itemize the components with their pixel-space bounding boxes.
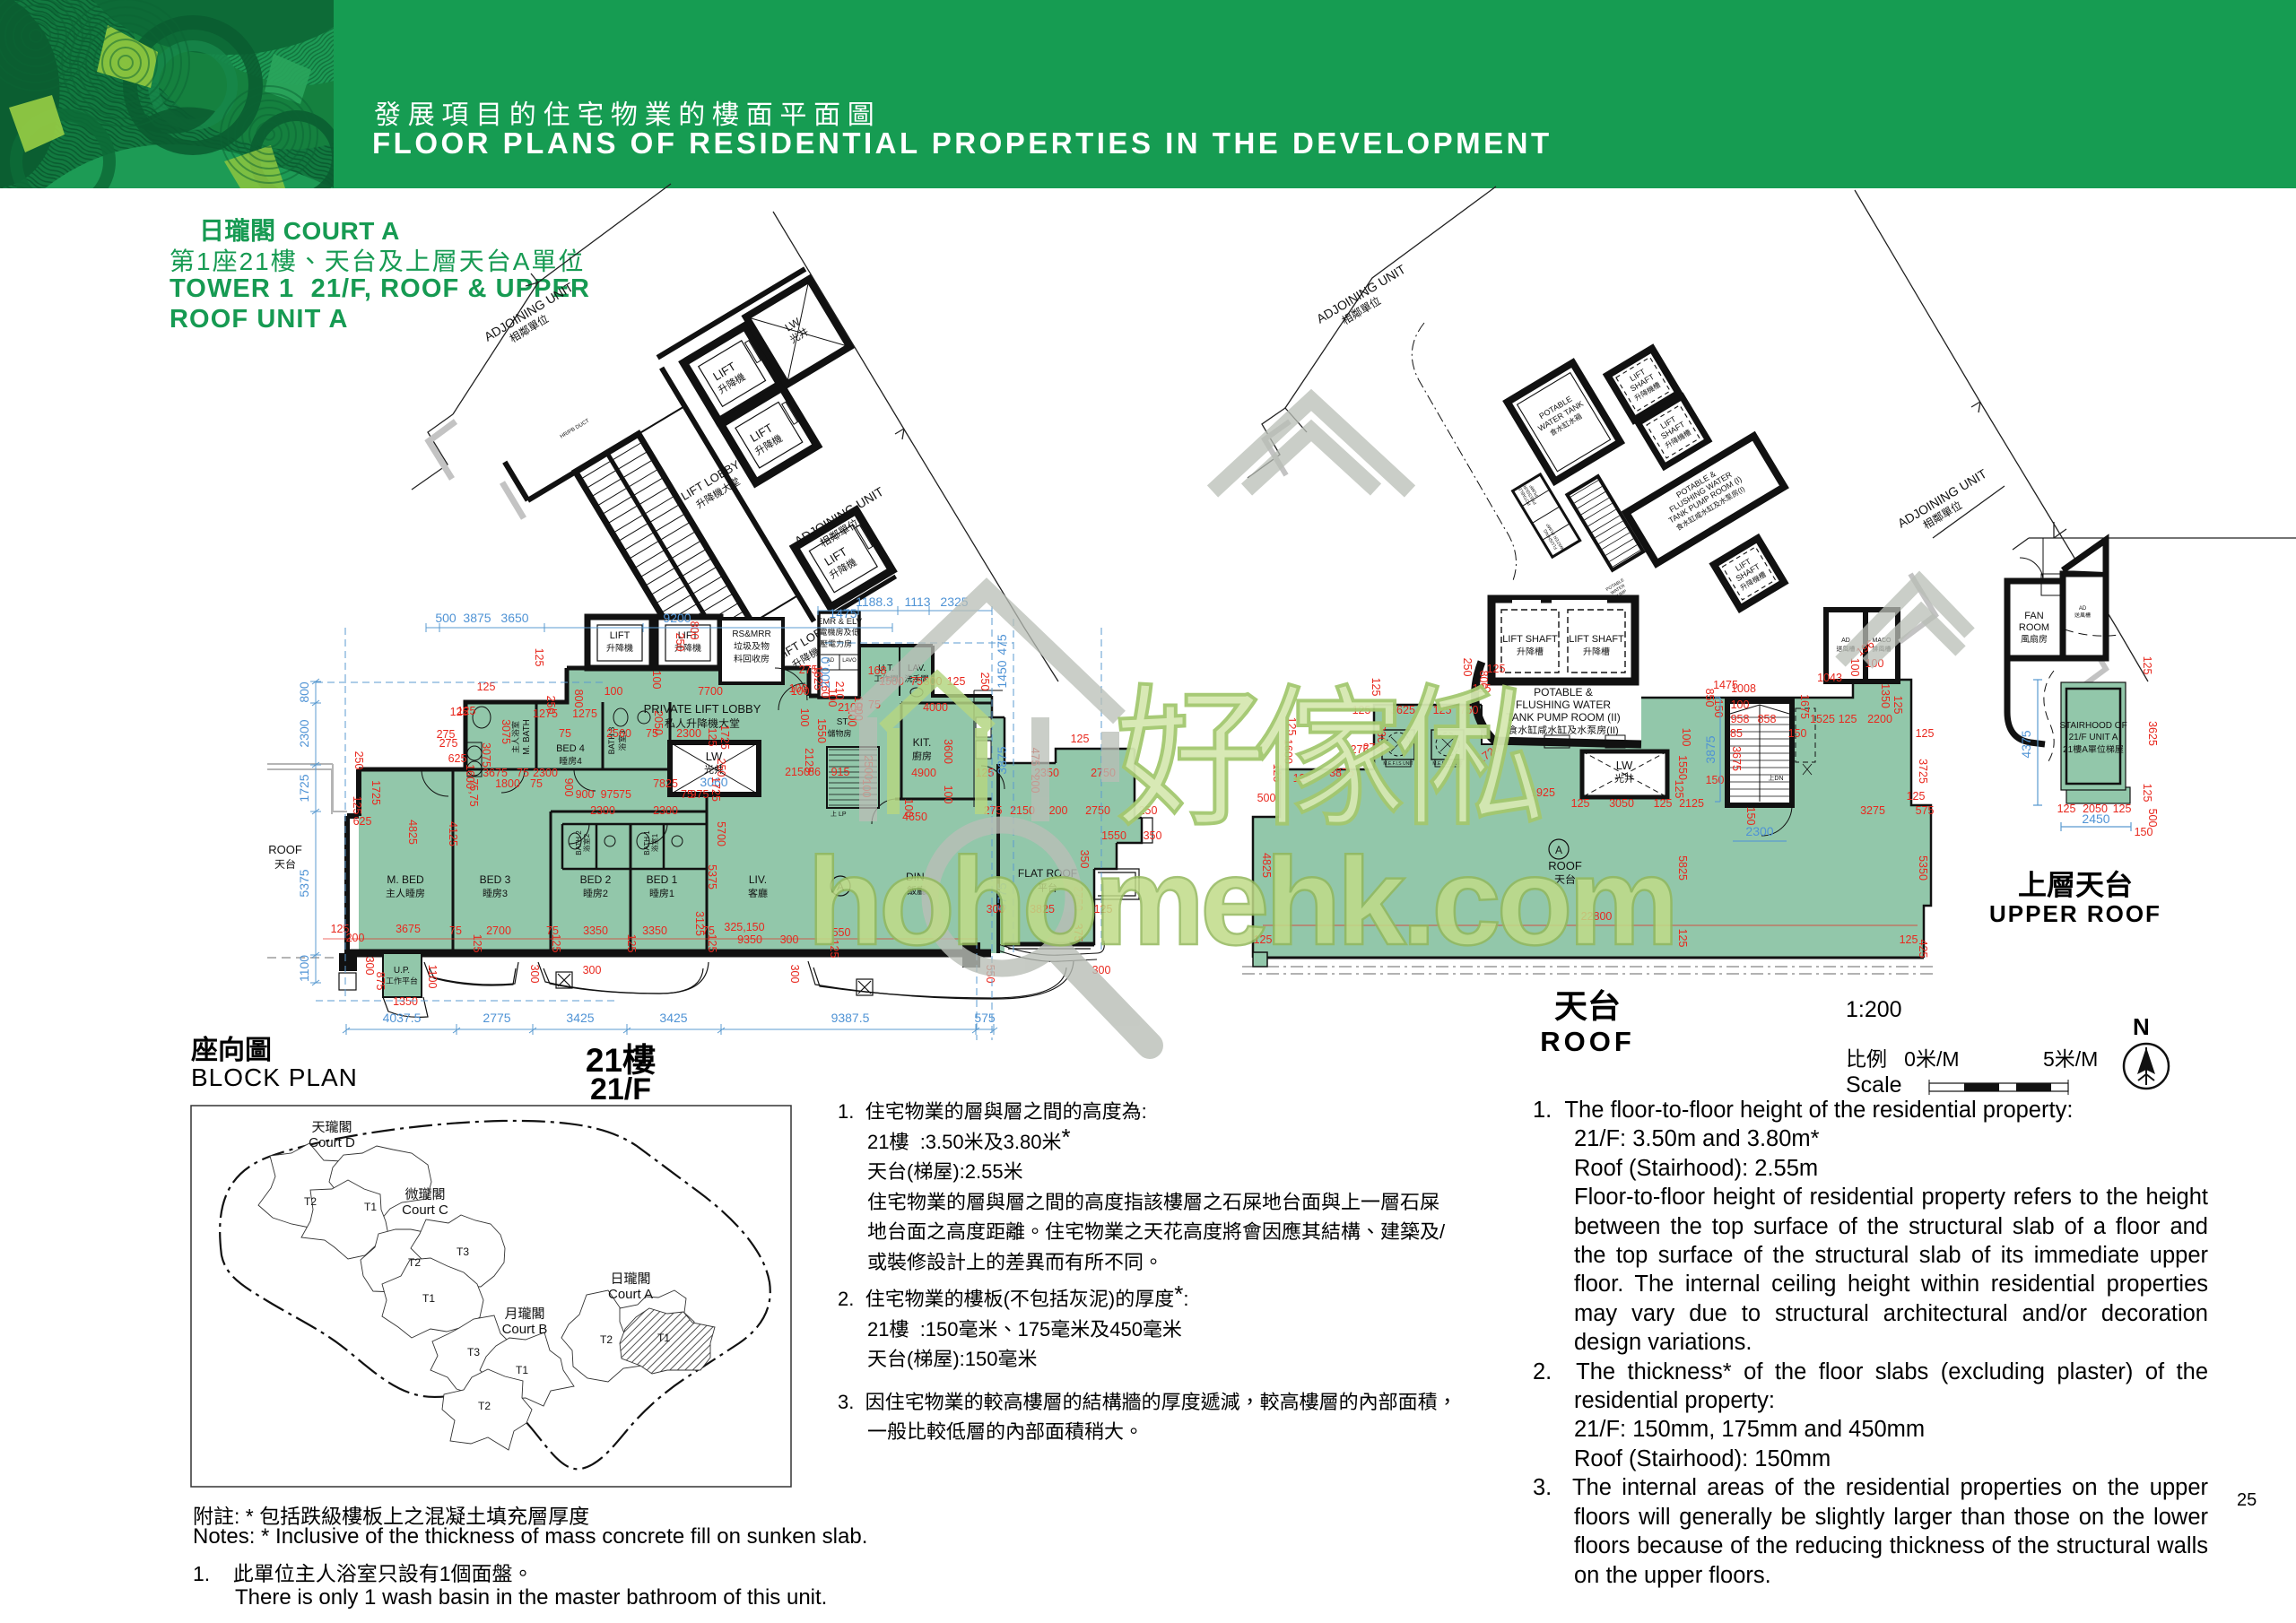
svg-text:M. BED: M. BED bbox=[387, 873, 424, 886]
svg-text:2300: 2300 bbox=[676, 727, 701, 740]
svg-text:125: 125 bbox=[1094, 903, 1113, 916]
svg-text:500: 500 bbox=[435, 611, 457, 625]
svg-text:100: 100 bbox=[604, 685, 623, 698]
svg-text:垃圾及物: 垃圾及物 bbox=[734, 641, 770, 652]
svg-text:5775: 5775 bbox=[995, 882, 1009, 910]
svg-text:M. BATH: M. BATH bbox=[522, 719, 532, 755]
svg-text:2050: 2050 bbox=[2083, 803, 2108, 815]
svg-text:550: 550 bbox=[984, 965, 996, 984]
svg-text:2325: 2325 bbox=[940, 595, 968, 609]
svg-text:LAVO: LAVO bbox=[842, 658, 857, 664]
svg-text:3350: 3350 bbox=[583, 924, 608, 937]
svg-text:150: 150 bbox=[1712, 699, 1725, 718]
svg-text:125: 125 bbox=[1254, 933, 1273, 946]
svg-text:2125: 2125 bbox=[1679, 797, 1704, 810]
svg-text:浴室2: 浴室2 bbox=[583, 833, 591, 852]
svg-text:2300: 2300 bbox=[297, 719, 311, 747]
svg-text:BED 4: BED 4 bbox=[556, 743, 585, 754]
svg-text:275: 275 bbox=[984, 804, 1003, 817]
svg-text:上 LP: 上 LP bbox=[831, 811, 847, 818]
svg-text:3425: 3425 bbox=[659, 1011, 687, 1025]
svg-text:1100: 1100 bbox=[426, 965, 439, 989]
svg-text:125: 125 bbox=[1654, 797, 1673, 810]
svg-text:1100: 1100 bbox=[297, 955, 311, 982]
svg-text:3875: 3875 bbox=[995, 746, 1009, 774]
svg-text:ROOF: ROOF bbox=[268, 843, 302, 856]
svg-text:2775: 2775 bbox=[483, 1011, 510, 1025]
svg-text:Court B: Court B bbox=[502, 1322, 548, 1337]
svg-text:4825: 4825 bbox=[406, 820, 419, 845]
svg-text:100: 100 bbox=[798, 708, 811, 727]
svg-text:300: 300 bbox=[583, 964, 602, 976]
svg-text:350: 350 bbox=[1144, 829, 1162, 842]
svg-text:125: 125 bbox=[828, 940, 840, 959]
svg-text:100: 100 bbox=[942, 785, 954, 804]
svg-text:475: 475 bbox=[995, 634, 1009, 655]
svg-text:BATH 1: BATH 1 bbox=[643, 830, 651, 855]
svg-text:KIT.: KIT. bbox=[913, 736, 932, 749]
svg-text:升降機: 升降機 bbox=[606, 643, 633, 654]
svg-text:3875: 3875 bbox=[463, 611, 491, 625]
svg-text:2300: 2300 bbox=[1745, 824, 1773, 838]
svg-text:升降槽: 升降槽 bbox=[1583, 647, 1610, 657]
svg-text:5825: 5825 bbox=[1676, 855, 1689, 881]
svg-text:BED 2: BED 2 bbox=[580, 873, 612, 886]
svg-text:LIFT SHAFT: LIFT SHAFT bbox=[1502, 634, 1558, 645]
svg-text:350: 350 bbox=[1078, 850, 1091, 869]
svg-text:250: 250 bbox=[978, 673, 991, 691]
svg-text:100: 100 bbox=[846, 708, 858, 727]
svg-text:125: 125 bbox=[947, 675, 966, 688]
svg-text:85: 85 bbox=[1730, 727, 1743, 740]
svg-text:125: 125 bbox=[976, 767, 995, 779]
svg-text:2560: 2560 bbox=[606, 727, 631, 740]
svg-text:送風槽: 送風槽 bbox=[1837, 646, 1856, 653]
svg-text:125: 125 bbox=[2141, 784, 2153, 803]
svg-text:1188.3: 1188.3 bbox=[856, 595, 893, 609]
svg-text:T2: T2 bbox=[408, 1256, 421, 1269]
svg-text:250: 250 bbox=[674, 633, 686, 652]
svg-text:100: 100 bbox=[1848, 658, 1861, 677]
svg-text:125: 125 bbox=[1907, 790, 1926, 803]
svg-text:2700: 2700 bbox=[486, 924, 511, 937]
svg-text:975: 975 bbox=[691, 788, 709, 801]
svg-text:POTABLE &: POTABLE & bbox=[1534, 686, 1593, 699]
svg-text:1350: 1350 bbox=[1879, 683, 1892, 708]
svg-text:4000: 4000 bbox=[923, 701, 948, 714]
svg-text:Court D: Court D bbox=[309, 1135, 355, 1150]
svg-text:21/F UNIT A: 21/F UNIT A bbox=[2069, 733, 2118, 742]
svg-text:475: 475 bbox=[1029, 748, 1041, 767]
svg-text:858: 858 bbox=[1758, 713, 1777, 725]
svg-text:22800: 22800 bbox=[1581, 910, 1613, 923]
svg-text:100: 100 bbox=[860, 779, 873, 798]
svg-text:1275: 1275 bbox=[533, 707, 558, 720]
svg-text:1550: 1550 bbox=[1101, 829, 1126, 842]
svg-text:AD: AD bbox=[1841, 638, 1850, 644]
svg-text:150: 150 bbox=[1788, 727, 1807, 740]
svg-text:125: 125 bbox=[1900, 933, 1918, 946]
svg-text:125: 125 bbox=[1271, 764, 1283, 783]
svg-text:1350: 1350 bbox=[393, 995, 418, 1008]
svg-text:T2: T2 bbox=[478, 1400, 491, 1412]
svg-text:1550: 1550 bbox=[815, 718, 828, 743]
svg-text:T3: T3 bbox=[467, 1346, 480, 1358]
svg-text:100: 100 bbox=[789, 682, 808, 695]
svg-text:1450: 1450 bbox=[995, 660, 1009, 688]
svg-text:光井: 光井 bbox=[1614, 773, 1634, 785]
svg-text:T2: T2 bbox=[304, 1195, 317, 1208]
svg-text:4900: 4900 bbox=[911, 767, 936, 779]
svg-text:125: 125 bbox=[1487, 663, 1506, 675]
svg-text:主人睡房: 主人睡房 bbox=[386, 888, 425, 899]
svg-text:1600: 1600 bbox=[1282, 739, 1294, 764]
svg-text:3875: 3875 bbox=[1703, 735, 1718, 763]
svg-text:3350: 3350 bbox=[642, 924, 667, 937]
svg-text:LAV.: LAV. bbox=[908, 664, 926, 673]
svg-text:7700: 7700 bbox=[698, 685, 723, 698]
svg-text:4650: 4650 bbox=[902, 811, 927, 823]
svg-text:800: 800 bbox=[297, 681, 311, 703]
svg-text:1525: 1525 bbox=[1810, 713, 1835, 725]
svg-text:250: 250 bbox=[1139, 804, 1158, 817]
svg-text:5700: 5700 bbox=[715, 821, 727, 846]
svg-text:958: 958 bbox=[1731, 713, 1750, 725]
svg-text:1008: 1008 bbox=[1731, 682, 1756, 695]
svg-text:BED 3: BED 3 bbox=[480, 873, 511, 886]
svg-text:250: 250 bbox=[715, 759, 727, 777]
svg-text:5375: 5375 bbox=[706, 864, 718, 890]
svg-text:3425: 3425 bbox=[566, 1011, 594, 1025]
svg-text:2750: 2750 bbox=[1091, 767, 1116, 779]
svg-text:1725: 1725 bbox=[718, 725, 731, 750]
svg-text:2300: 2300 bbox=[1375, 725, 1387, 750]
svg-text:T1: T1 bbox=[422, 1292, 435, 1305]
svg-text:4125: 4125 bbox=[447, 821, 459, 846]
svg-text:275: 275 bbox=[1351, 743, 1370, 756]
svg-text:3675: 3675 bbox=[396, 923, 421, 935]
svg-text:1113: 1113 bbox=[904, 595, 930, 609]
svg-text:150: 150 bbox=[1744, 807, 1757, 826]
svg-text:3675: 3675 bbox=[1730, 746, 1743, 771]
svg-text:200: 200 bbox=[346, 932, 365, 944]
svg-text:睡房4: 睡房4 bbox=[559, 756, 582, 767]
svg-text:風扇房: 風扇房 bbox=[2021, 634, 2048, 645]
svg-text:915: 915 bbox=[831, 766, 850, 778]
svg-text:100: 100 bbox=[1680, 728, 1692, 747]
svg-text:3725: 3725 bbox=[1917, 759, 1929, 784]
svg-text:625: 625 bbox=[353, 815, 372, 828]
svg-text:375: 375 bbox=[1072, 924, 1084, 942]
svg-text:壓電力房: 壓電力房 bbox=[820, 639, 852, 648]
svg-text:天台: 天台 bbox=[1554, 873, 1576, 886]
svg-text:200: 200 bbox=[1049, 804, 1068, 817]
svg-text:4825: 4825 bbox=[1260, 853, 1273, 878]
svg-text:1043: 1043 bbox=[1817, 672, 1842, 684]
svg-text:升降槽: 升降槽 bbox=[1517, 647, 1544, 657]
svg-text:工作平台: 工作平台 bbox=[386, 976, 418, 985]
svg-text:200.0: 200.0 bbox=[818, 656, 832, 688]
svg-text:100: 100 bbox=[1865, 657, 1884, 670]
svg-text:75: 75 bbox=[619, 788, 631, 801]
svg-text:3875: 3875 bbox=[1329, 767, 1354, 779]
svg-text:BATH 2: BATH 2 bbox=[575, 830, 583, 855]
svg-text:1725: 1725 bbox=[370, 780, 382, 805]
svg-text:275: 275 bbox=[799, 664, 818, 676]
svg-text:125: 125 bbox=[533, 648, 545, 667]
svg-text:75,75: 75,75 bbox=[467, 778, 480, 806]
svg-text:上DN: 上DN bbox=[1768, 775, 1783, 782]
svg-text:睡房3: 睡房3 bbox=[483, 888, 508, 899]
svg-text:送風槽: 送風槽 bbox=[2074, 612, 2091, 619]
svg-text:2300: 2300 bbox=[590, 804, 615, 817]
svg-text:RS&MRR: RS&MRR bbox=[732, 629, 770, 639]
svg-text:125: 125 bbox=[351, 796, 363, 815]
svg-text:天台: 天台 bbox=[274, 858, 296, 871]
svg-text:575: 575 bbox=[1916, 804, 1935, 817]
svg-text:168: 168 bbox=[868, 664, 887, 677]
svg-text:125: 125 bbox=[2057, 803, 2076, 815]
svg-text:LIFT SHAFT: LIFT SHAFT bbox=[1569, 634, 1624, 645]
svg-text:HR/PB DUCT: HR/PB DUCT bbox=[560, 418, 591, 439]
svg-text:3625: 3625 bbox=[1390, 704, 1415, 716]
svg-text:3650: 3650 bbox=[500, 611, 528, 625]
svg-text:800: 800 bbox=[572, 690, 585, 708]
svg-text:2125: 2125 bbox=[803, 748, 815, 773]
svg-text:250: 250 bbox=[1461, 658, 1474, 677]
svg-text:儲物房: 儲物房 bbox=[827, 729, 851, 738]
svg-text:1475: 1475 bbox=[829, 606, 857, 621]
svg-text:DIN.: DIN. bbox=[906, 871, 927, 883]
svg-text:1725: 1725 bbox=[709, 777, 722, 802]
svg-text:3075: 3075 bbox=[480, 742, 492, 768]
svg-text:1925: 1925 bbox=[1530, 786, 1555, 799]
svg-text:125: 125 bbox=[706, 934, 718, 953]
svg-text:1725: 1725 bbox=[297, 774, 311, 802]
svg-text:100: 100 bbox=[1731, 699, 1750, 711]
svg-text:125: 125 bbox=[471, 934, 483, 953]
svg-text:電機房及低: 電機房及低 bbox=[819, 628, 859, 637]
svg-text:2750: 2750 bbox=[1085, 804, 1110, 817]
svg-text:150: 150 bbox=[2135, 826, 2153, 838]
svg-text:ROOF: ROOF bbox=[1548, 859, 1582, 872]
svg-text:T1: T1 bbox=[516, 1364, 528, 1376]
svg-text:75: 75 bbox=[910, 675, 923, 688]
svg-text:7825: 7825 bbox=[653, 777, 678, 790]
svg-text:1550: 1550 bbox=[1676, 755, 1689, 780]
svg-text:250: 250 bbox=[352, 751, 365, 770]
svg-text:125: 125 bbox=[1071, 733, 1090, 745]
svg-text:900: 900 bbox=[576, 788, 595, 801]
svg-text:T2: T2 bbox=[600, 1333, 613, 1346]
svg-text:睡房2: 睡房2 bbox=[583, 888, 608, 899]
svg-text:FLUSHING WATER: FLUSHING WATER bbox=[1516, 699, 1611, 711]
svg-text:500: 500 bbox=[2146, 809, 2159, 828]
svg-text:125: 125 bbox=[1892, 696, 1904, 715]
svg-text:2300: 2300 bbox=[653, 804, 678, 817]
svg-text:125: 125 bbox=[1285, 717, 1298, 736]
svg-text:125: 125 bbox=[2141, 656, 2153, 675]
svg-text:1675: 1675 bbox=[1798, 694, 1811, 719]
svg-text:3050: 3050 bbox=[1609, 797, 1634, 810]
svg-text:425: 425 bbox=[1917, 940, 1929, 959]
svg-text:U.P.: U.P. bbox=[394, 966, 410, 976]
svg-text:300: 300 bbox=[363, 957, 376, 976]
svg-text:800: 800 bbox=[924, 675, 943, 688]
svg-text:3600: 3600 bbox=[942, 739, 954, 764]
svg-text:9350: 9350 bbox=[737, 933, 762, 946]
svg-text:9200: 9200 bbox=[663, 611, 691, 625]
svg-text:125: 125 bbox=[1839, 713, 1857, 725]
svg-text:75: 75 bbox=[449, 924, 462, 937]
svg-text:500: 500 bbox=[1257, 792, 1276, 804]
svg-text:625: 625 bbox=[448, 752, 467, 765]
svg-text:3825: 3825 bbox=[1030, 903, 1055, 916]
svg-text:125: 125 bbox=[706, 728, 718, 747]
svg-text:125: 125 bbox=[1676, 929, 1689, 948]
svg-text:A: A bbox=[837, 881, 844, 893]
svg-text:M.E.F.I.S UNIT: M.E.F.I.S UNIT bbox=[1383, 761, 1413, 767]
svg-text:750: 750 bbox=[1460, 704, 1479, 716]
svg-text:125: 125 bbox=[2113, 803, 2132, 815]
svg-text:75: 75 bbox=[559, 727, 571, 740]
svg-text:飯廳: 飯廳 bbox=[907, 885, 926, 897]
svg-text:月瓏閣: 月瓏閣 bbox=[504, 1306, 544, 1322]
svg-text:100: 100 bbox=[650, 671, 663, 690]
svg-text:975: 975 bbox=[601, 788, 620, 801]
svg-text:1500: 1500 bbox=[879, 675, 904, 688]
svg-text:125: 125 bbox=[1916, 727, 1935, 740]
svg-text:天瓏閣: 天瓏閣 bbox=[311, 1120, 352, 1135]
svg-text:200: 200 bbox=[1029, 775, 1041, 794]
svg-text:1800: 1800 bbox=[495, 777, 520, 790]
svg-text:300: 300 bbox=[1092, 964, 1111, 976]
svg-text:325,150: 325,150 bbox=[724, 921, 764, 933]
svg-text:210: 210 bbox=[833, 681, 846, 700]
svg-text:125: 125 bbox=[1370, 678, 1382, 697]
svg-text:T1: T1 bbox=[364, 1201, 377, 1213]
svg-text:廚房: 廚房 bbox=[912, 751, 932, 762]
svg-text:5350: 5350 bbox=[1917, 855, 1929, 881]
svg-text:3075: 3075 bbox=[500, 719, 512, 744]
svg-text:4375: 4375 bbox=[2019, 730, 2033, 758]
svg-text:LW: LW bbox=[1616, 759, 1633, 772]
svg-text:550: 550 bbox=[832, 926, 851, 939]
svg-text:125: 125 bbox=[1571, 797, 1590, 810]
svg-text:2500: 2500 bbox=[862, 755, 874, 780]
svg-text:3275: 3275 bbox=[1860, 804, 1885, 817]
svg-text:2750: 2750 bbox=[1072, 886, 1084, 911]
svg-text:875: 875 bbox=[374, 972, 387, 991]
svg-text:LIFT: LIFT bbox=[610, 630, 631, 641]
svg-text:125: 125 bbox=[1473, 682, 1492, 695]
svg-text:125: 125 bbox=[450, 706, 469, 718]
svg-text:275: 275 bbox=[439, 737, 458, 750]
svg-text:300: 300 bbox=[788, 965, 801, 984]
svg-text:STAIRHOOD OF: STAIRHOOD OF bbox=[2059, 721, 2126, 731]
svg-text:LIV.: LIV. bbox=[749, 873, 767, 886]
svg-text:75: 75 bbox=[530, 777, 543, 790]
svg-text:21樓A單位梯屋: 21樓A單位梯屋 bbox=[2063, 744, 2124, 755]
svg-text:3625: 3625 bbox=[2146, 721, 2159, 746]
svg-text:M.E.F.I.S UNIT: M.E.F.I.S UNIT bbox=[1432, 761, 1462, 767]
svg-text:BED 1: BED 1 bbox=[647, 873, 678, 886]
svg-text:TANK PUMP ROOM (II): TANK PUMP ROOM (II) bbox=[1506, 711, 1621, 724]
svg-text:300: 300 bbox=[780, 933, 799, 946]
svg-text:AD: AD bbox=[2079, 606, 2087, 612]
svg-text:食水缸咸水缸及水泵房(II): 食水缸咸水缸及水泵房(II) bbox=[1508, 725, 1618, 736]
svg-text:2200: 2200 bbox=[1867, 713, 1892, 725]
svg-text:ROOM: ROOM bbox=[2019, 622, 2049, 633]
svg-text:MACO: MACO bbox=[1873, 638, 1892, 644]
svg-text:125: 125 bbox=[625, 934, 638, 953]
svg-text:125: 125 bbox=[1433, 704, 1452, 716]
svg-text:125: 125 bbox=[1352, 704, 1371, 716]
svg-text:客廳: 客廳 bbox=[748, 888, 768, 899]
svg-text:睡房1: 睡房1 bbox=[649, 888, 674, 899]
svg-text:T3: T3 bbox=[457, 1245, 469, 1258]
svg-text:75: 75 bbox=[646, 727, 658, 740]
svg-text:日瓏閣: 日瓏閣 bbox=[610, 1271, 650, 1287]
svg-text:FAN: FAN bbox=[2024, 611, 2043, 621]
svg-text:125: 125 bbox=[550, 934, 562, 953]
svg-text:75: 75 bbox=[868, 699, 881, 711]
svg-text:150: 150 bbox=[1706, 774, 1725, 786]
svg-text:微瓏閣: 微瓏閣 bbox=[404, 1187, 445, 1202]
svg-text:Court A: Court A bbox=[608, 1287, 653, 1302]
svg-text:125: 125 bbox=[1673, 780, 1685, 799]
svg-text:5375: 5375 bbox=[297, 869, 311, 897]
svg-text:浴室1: 浴室1 bbox=[651, 833, 659, 852]
svg-text:FLAT ROOF: FLAT ROOF bbox=[1018, 867, 1077, 880]
svg-text:9387.5: 9387.5 bbox=[831, 1011, 870, 1025]
svg-text:平台: 平台 bbox=[1038, 882, 1057, 894]
svg-text:900: 900 bbox=[562, 778, 575, 797]
svg-text:300: 300 bbox=[528, 965, 541, 984]
svg-text:Court C: Court C bbox=[402, 1202, 448, 1218]
svg-text:4037.5: 4037.5 bbox=[383, 1011, 422, 1025]
svg-text:A: A bbox=[1555, 844, 1562, 856]
svg-text:125: 125 bbox=[1293, 772, 1312, 785]
svg-text:料回收房: 料回收房 bbox=[734, 654, 770, 664]
svg-text:1275: 1275 bbox=[572, 707, 597, 720]
svg-text:T1: T1 bbox=[657, 1332, 670, 1344]
